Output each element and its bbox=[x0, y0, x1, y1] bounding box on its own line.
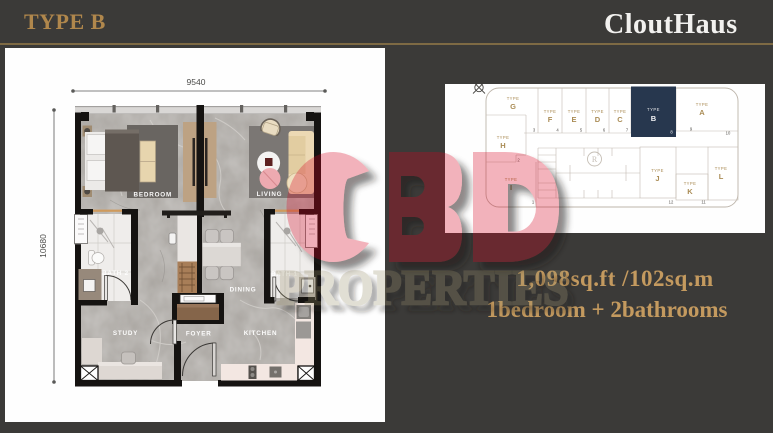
svg-text:C: C bbox=[617, 115, 623, 124]
svg-text:DINING: DINING bbox=[230, 286, 257, 293]
svg-text:LIVING: LIVING bbox=[257, 191, 283, 198]
svg-text:TYPE: TYPE bbox=[497, 135, 510, 140]
svg-text:TYPE: TYPE bbox=[507, 96, 520, 101]
svg-text:TYPE: TYPE bbox=[651, 168, 664, 173]
svg-text:KITCHEN: KITCHEN bbox=[244, 330, 278, 337]
svg-text:TYPE: TYPE bbox=[505, 177, 518, 182]
svg-text:12: 12 bbox=[669, 200, 674, 205]
svg-text:TYPE: TYPE bbox=[647, 107, 660, 112]
svg-text:K: K bbox=[687, 187, 693, 196]
svg-text:A: A bbox=[699, 108, 705, 117]
svg-text:TYPE: TYPE bbox=[591, 109, 604, 114]
svg-text:BATH 2: BATH 2 bbox=[102, 270, 129, 277]
svg-text:BATH 1: BATH 1 bbox=[271, 271, 298, 278]
svg-text:FOYER: FOYER bbox=[186, 331, 212, 338]
svg-text:10680: 10680 bbox=[38, 234, 48, 258]
svg-text:TYPE: TYPE bbox=[696, 102, 709, 107]
svg-text:11: 11 bbox=[701, 200, 706, 205]
svg-text:TYPE: TYPE bbox=[715, 166, 728, 171]
svg-text:L: L bbox=[719, 172, 724, 181]
svg-text:D: D bbox=[595, 115, 601, 124]
svg-text:R: R bbox=[592, 155, 598, 164]
svg-text:I: I bbox=[510, 183, 512, 192]
svg-text:9540: 9540 bbox=[187, 77, 206, 87]
svg-text:E: E bbox=[571, 115, 576, 124]
svg-text:TYPE: TYPE bbox=[614, 109, 627, 114]
svg-text:BEDROOM: BEDROOM bbox=[134, 191, 172, 198]
svg-text:G: G bbox=[510, 102, 516, 111]
svg-text:STUDY: STUDY bbox=[113, 330, 138, 337]
svg-text:B: B bbox=[651, 114, 657, 123]
svg-text:F: F bbox=[548, 115, 553, 124]
svg-text:J: J bbox=[655, 174, 659, 183]
svg-text:TYPE: TYPE bbox=[684, 181, 697, 186]
svg-text:10: 10 bbox=[726, 131, 731, 136]
svg-text:H: H bbox=[500, 141, 505, 150]
svg-text:N: N bbox=[470, 84, 473, 85]
svg-text:TYPE: TYPE bbox=[544, 109, 557, 114]
svg-text:TYPE: TYPE bbox=[568, 109, 581, 114]
